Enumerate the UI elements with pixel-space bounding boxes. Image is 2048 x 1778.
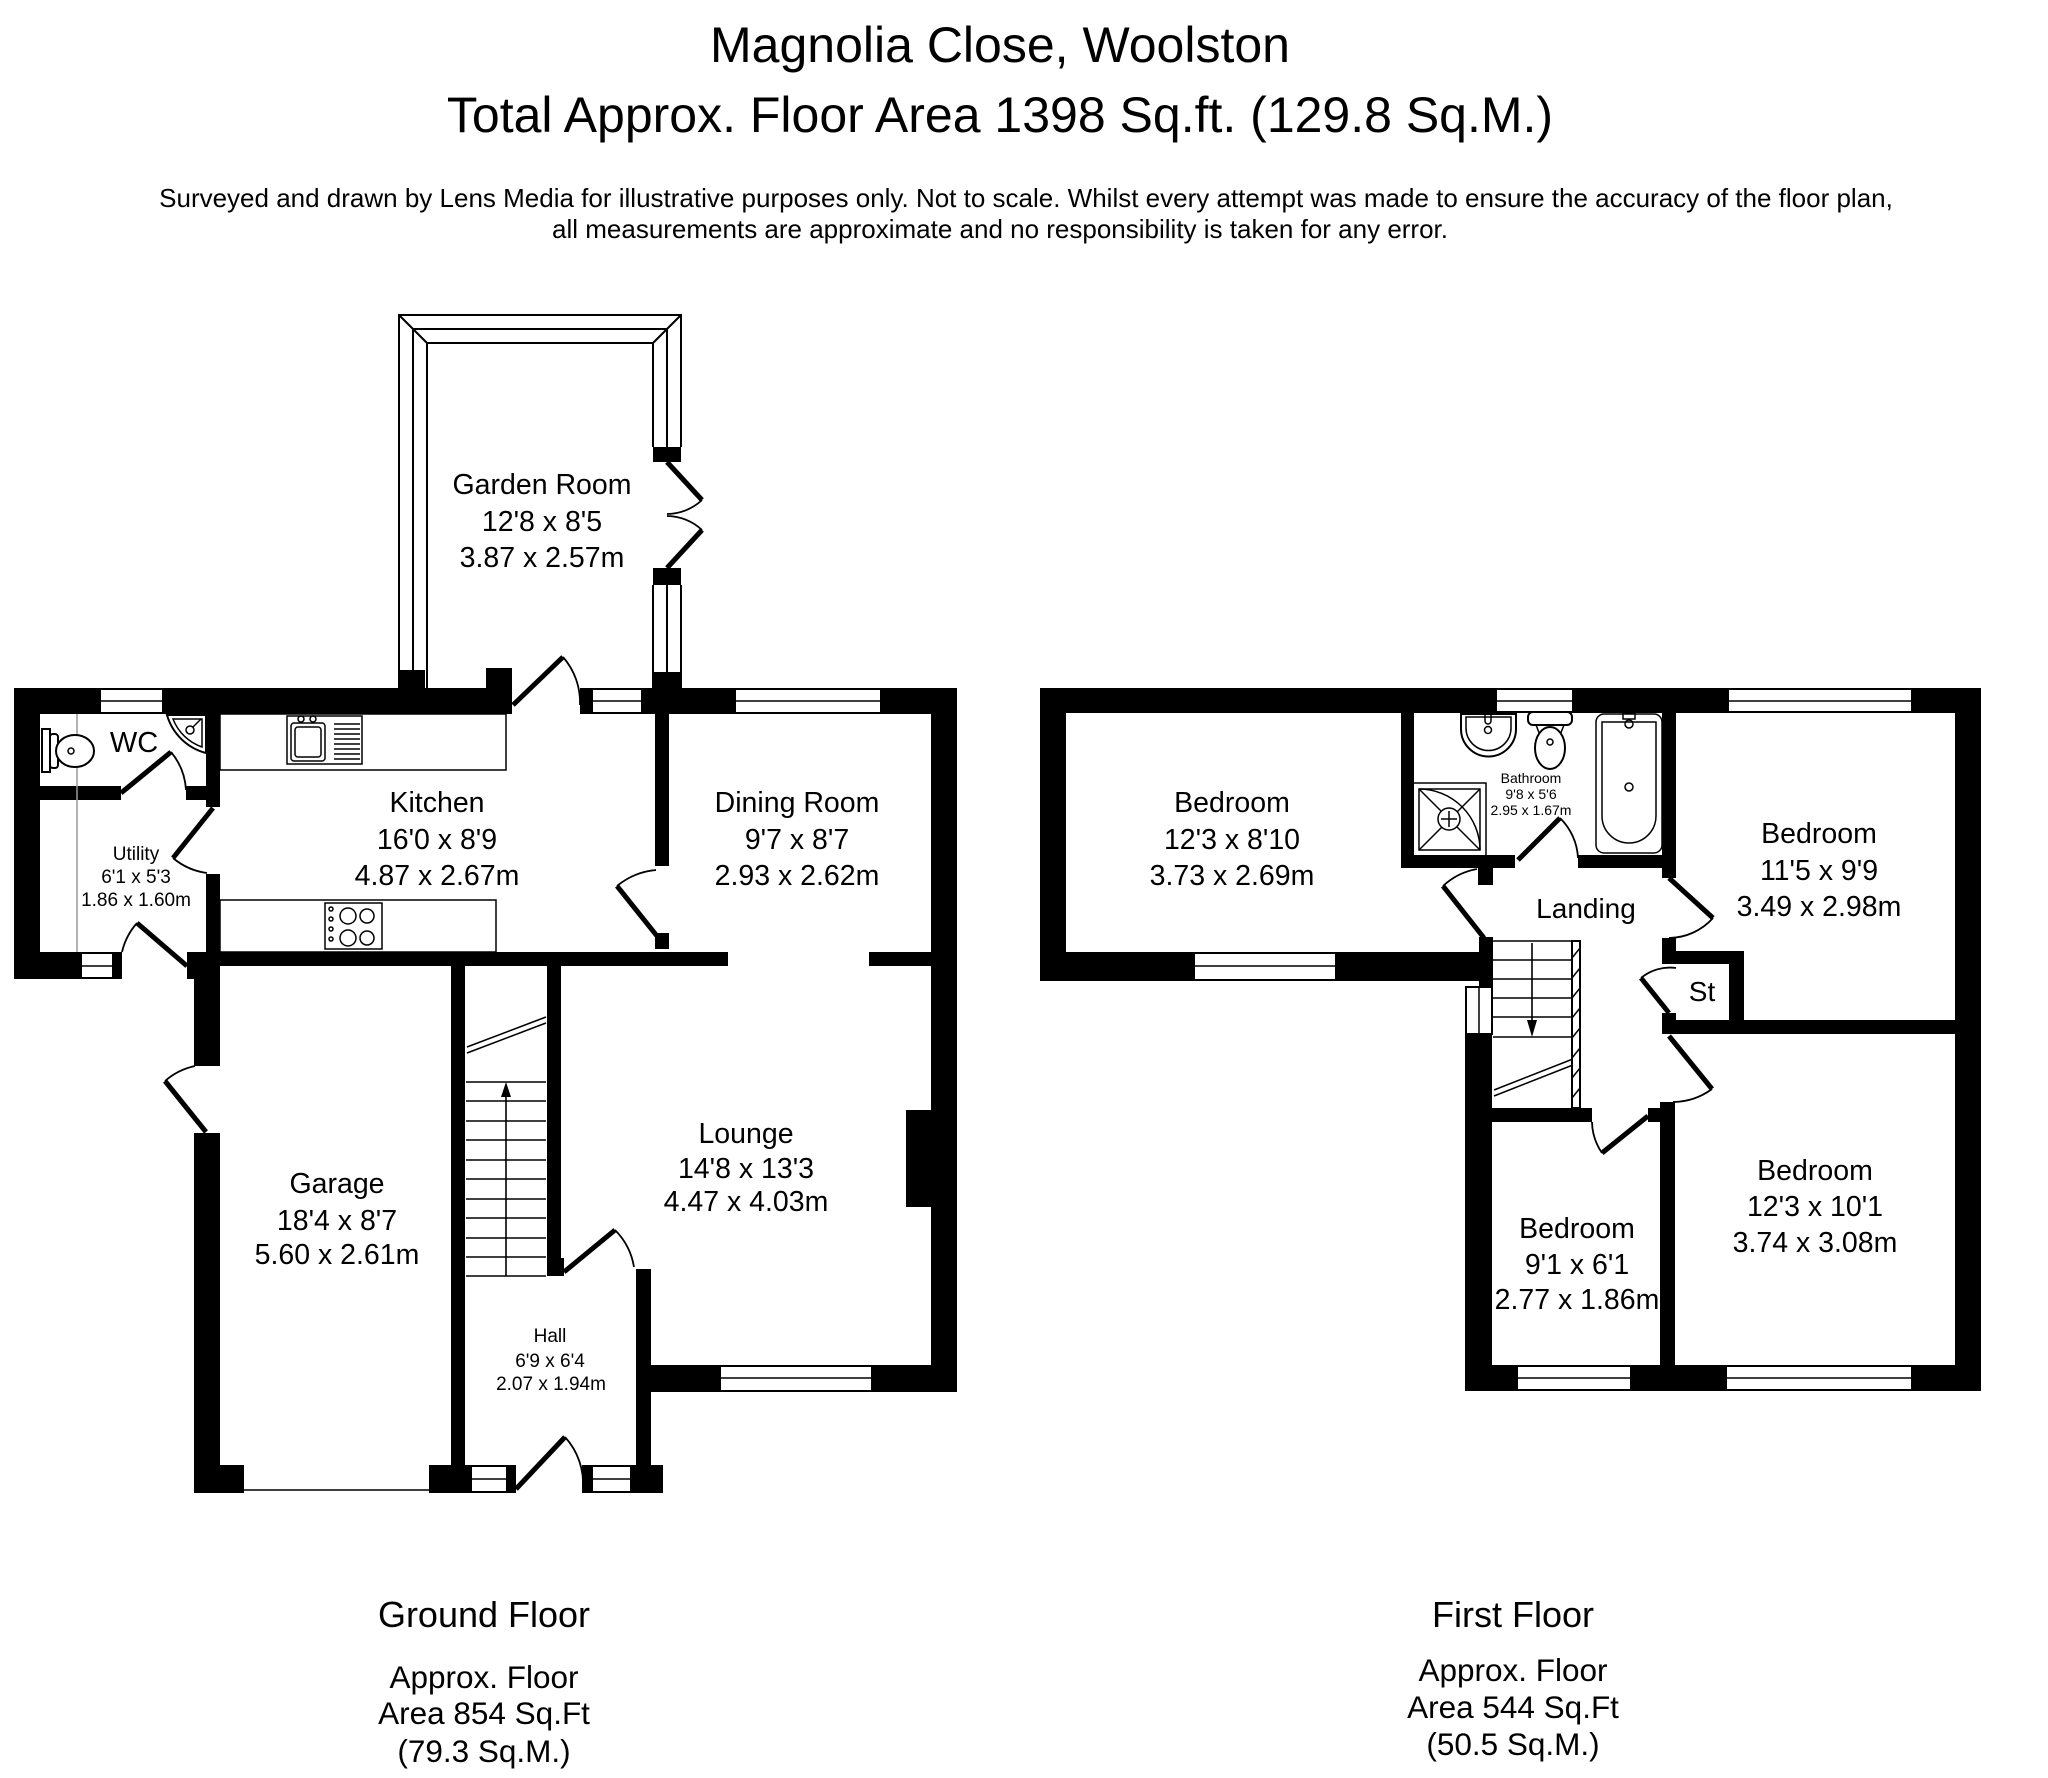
svg-text:Bedroom: Bedroom — [1761, 818, 1877, 850]
svg-text:11'5 x 9'9: 11'5 x 9'9 — [1760, 855, 1878, 887]
svg-text:Hall: Hall — [534, 1326, 567, 1347]
svg-text:12'3 x 8'10: 12'3 x 8'10 — [1164, 824, 1300, 856]
svg-text:3.87 x 2.57m: 3.87 x 2.57m — [460, 542, 625, 574]
svg-text:Garden Room: Garden Room — [452, 469, 631, 501]
svg-text:Utility: Utility — [113, 844, 160, 865]
svg-text:2.93 x 2.62m: 2.93 x 2.62m — [715, 860, 880, 892]
svg-text:St: St — [1689, 976, 1716, 1007]
svg-text:9'1 x 6'1: 9'1 x 6'1 — [1525, 1249, 1629, 1281]
svg-text:Approx. Floor: Approx. Floor — [389, 1659, 578, 1695]
svg-text:Bedroom: Bedroom — [1519, 1213, 1635, 1245]
svg-text:First Floor: First Floor — [1432, 1594, 1594, 1635]
svg-text:4.87 x 2.67m: 4.87 x 2.67m — [355, 860, 520, 892]
svg-text:4.47 x 4.03m: 4.47 x 4.03m — [664, 1186, 829, 1218]
svg-text:6'1 x 5'3: 6'1 x 5'3 — [101, 867, 171, 888]
svg-text:18'4 x 8'7: 18'4 x 8'7 — [277, 1205, 397, 1237]
svg-text:Bathroom: Bathroom — [1501, 770, 1562, 786]
svg-text:Surveyed and drawn by Lens Med: Surveyed and drawn by Lens Media for ill… — [159, 183, 1893, 213]
svg-text:Area 854 Sq.Ft: Area 854 Sq.Ft — [378, 1695, 590, 1731]
svg-text:16'0 x 8'9: 16'0 x 8'9 — [377, 824, 497, 856]
svg-text:2.07 x 1.94m: 2.07 x 1.94m — [496, 1374, 606, 1395]
svg-text:Bedroom: Bedroom — [1757, 1155, 1873, 1187]
svg-text:3.73 x 2.69m: 3.73 x 2.69m — [1150, 860, 1315, 892]
svg-text:Total Approx. Floor Area 1398: Total Approx. Floor Area 1398 Sq.ft. (12… — [447, 87, 1553, 143]
svg-text:(79.3 Sq.M.): (79.3 Sq.M.) — [397, 1733, 570, 1769]
svg-text:Bedroom: Bedroom — [1174, 787, 1290, 819]
svg-text:2.95 x 1.67m: 2.95 x 1.67m — [1491, 802, 1572, 818]
svg-text:WC: WC — [110, 727, 158, 759]
svg-text:1.86 x 1.60m: 1.86 x 1.60m — [81, 890, 191, 911]
svg-text:Landing: Landing — [1536, 893, 1636, 924]
svg-text:Garage: Garage — [289, 1168, 384, 1200]
svg-text:Lounge: Lounge — [698, 1118, 793, 1150]
svg-text:14'8 x 13'3: 14'8 x 13'3 — [678, 1153, 814, 1185]
svg-text:3.49 x 2.98m: 3.49 x 2.98m — [1737, 891, 1902, 923]
svg-text:6'9 x 6'4: 6'9 x 6'4 — [515, 1351, 585, 1372]
svg-text:all measurements are approxima: all measurements are approximate and no … — [552, 214, 1448, 244]
svg-text:12'8 x 8'5: 12'8 x 8'5 — [482, 506, 602, 538]
svg-text:9'7 x 8'7: 9'7 x 8'7 — [745, 824, 849, 856]
svg-text:Area 544 Sq.Ft: Area 544 Sq.Ft — [1407, 1689, 1619, 1725]
svg-text:3.74 x 3.08m: 3.74 x 3.08m — [1733, 1227, 1898, 1259]
svg-text:12'3 x 10'1: 12'3 x 10'1 — [1747, 1191, 1883, 1223]
svg-text:2.77 x 1.86m: 2.77 x 1.86m — [1495, 1284, 1660, 1316]
svg-text:Magnolia Close, Woolston: Magnolia Close, Woolston — [710, 17, 1290, 73]
svg-text:Ground Floor: Ground Floor — [378, 1594, 590, 1635]
svg-text:Dining Room: Dining Room — [715, 787, 880, 819]
svg-text:Approx. Floor: Approx. Floor — [1418, 1652, 1607, 1688]
svg-text:9'8 x 5'6: 9'8 x 5'6 — [1505, 786, 1556, 802]
svg-text:5.60 x 2.61m: 5.60 x 2.61m — [255, 1239, 420, 1271]
svg-text:Kitchen: Kitchen — [389, 787, 484, 819]
svg-text:(50.5 Sq.M.): (50.5 Sq.M.) — [1426, 1726, 1599, 1762]
